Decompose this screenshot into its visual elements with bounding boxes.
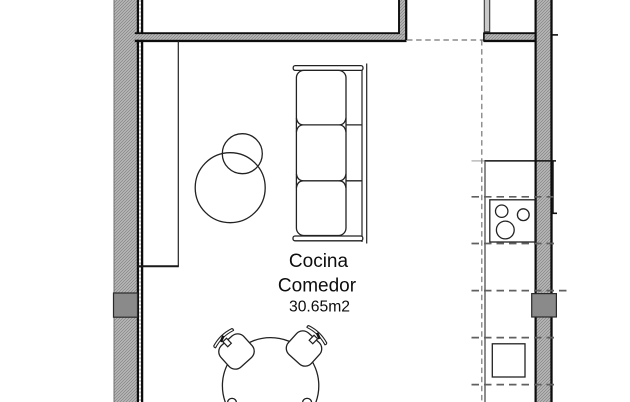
- svg-text:30.65m2: 30.65m2: [289, 299, 350, 316]
- svg-text:Comedor: Comedor: [278, 276, 357, 297]
- svg-text:Cocina: Cocina: [289, 251, 349, 272]
